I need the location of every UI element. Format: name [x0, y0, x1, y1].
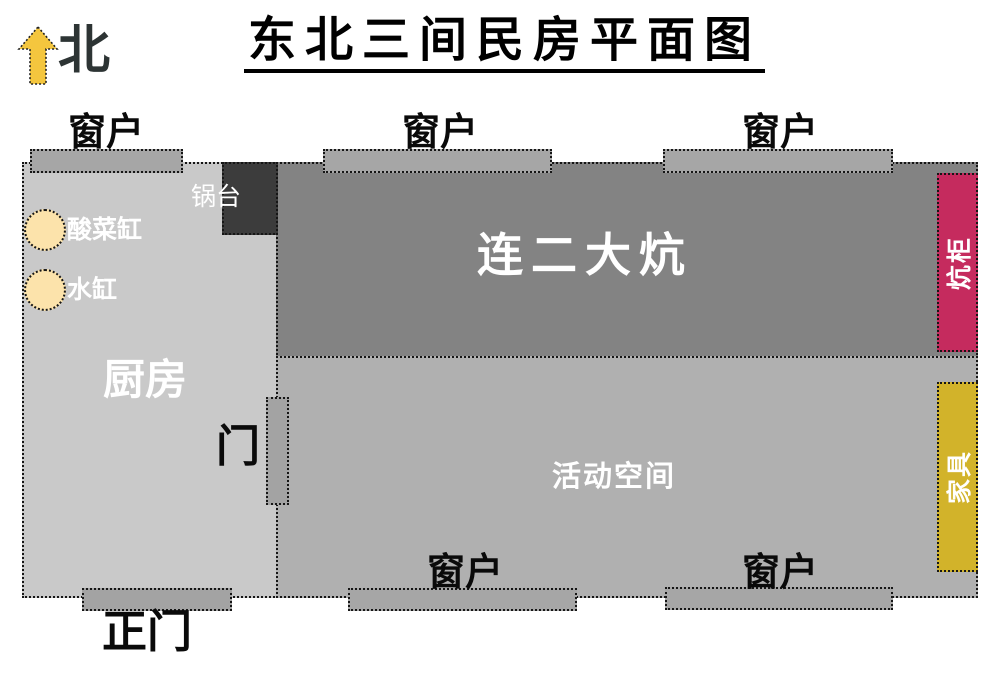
main-door-label: 正门 — [102, 608, 192, 655]
kang-label: 连二大炕 — [477, 231, 693, 279]
window-label: 窗户 — [742, 114, 818, 154]
water-vat — [24, 269, 66, 311]
window-label: 窗户 — [402, 114, 478, 154]
pickle-vat — [24, 209, 66, 251]
floor-plan: 北 东北三间民房平面图 锅台 窗户 窗户 窗户 窗户 窗户 正门 门 酸菜缸 水… — [0, 0, 1000, 700]
north-arrow-icon — [17, 26, 59, 86]
kang-cabinet: 炕柜 — [937, 173, 978, 352]
kitchen-label: 厨房 — [103, 358, 187, 402]
north-label: 北 — [58, 24, 110, 79]
activity-label: 活动空间 — [552, 462, 676, 492]
window-label: 窗户 — [427, 554, 503, 594]
page-title: 东北三间民房平面图 — [244, 16, 765, 73]
furniture: 家具 — [937, 382, 978, 572]
kang-cabinet-label: 炕柜 — [940, 235, 976, 289]
inner-door-label: 门 — [216, 424, 260, 470]
furniture-label: 家具 — [940, 450, 976, 504]
window-label: 窗户 — [742, 554, 818, 594]
inner-door — [266, 397, 289, 505]
pickle-vat-label: 酸菜缸 — [67, 217, 142, 243]
window-label: 窗户 — [68, 114, 144, 154]
stove-label: 锅台 — [191, 184, 241, 210]
water-vat-label: 水缸 — [67, 277, 117, 303]
